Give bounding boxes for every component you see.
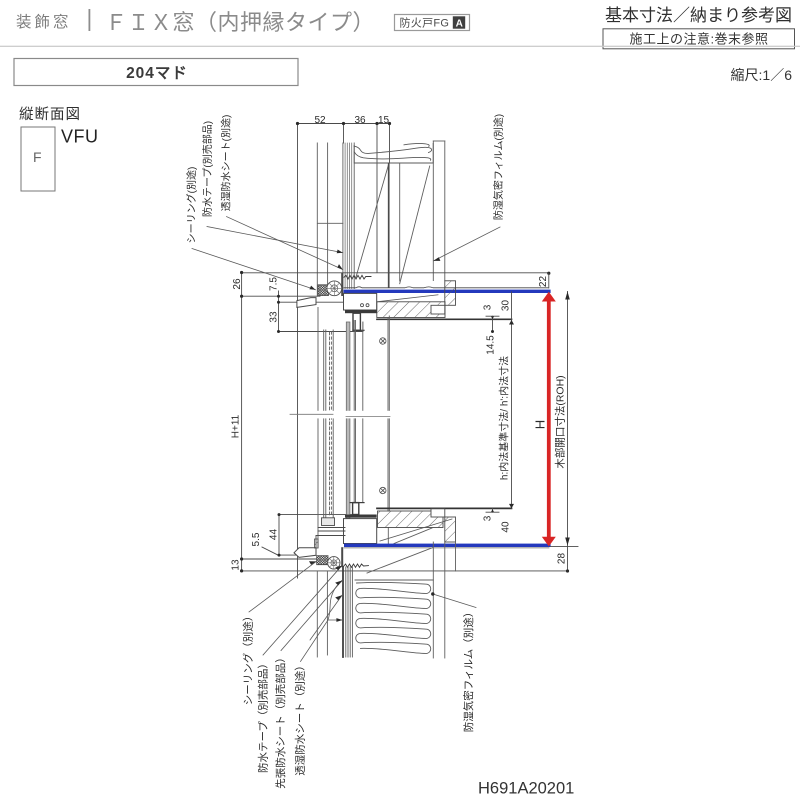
svg-text:40: 40 [501, 521, 512, 533]
svg-text:A: A [456, 18, 463, 29]
svg-text:防湿気密フィルム(別途): 防湿気密フィルム(別途) [492, 114, 505, 220]
svg-text:透湿防水シート（別途）: 透湿防水シート（別途） [293, 660, 306, 776]
svg-text:ＦＩＸ窓（内押縁タイプ）: ＦＩＸ窓（内押縁タイプ） [105, 10, 375, 35]
svg-text:36: 36 [354, 115, 366, 126]
svg-text:H+11: H+11 [231, 414, 242, 438]
svg-text:防火戸FG: 防火戸FG [400, 16, 450, 30]
svg-text:3: 3 [483, 515, 494, 521]
svg-text:52: 52 [314, 115, 326, 126]
svg-text:3: 3 [483, 304, 494, 310]
svg-text:基本寸法／納まり参考図: 基本寸法／納まり参考図 [605, 6, 792, 25]
svg-text:防湿気密フィルム（別途）: 防湿気密フィルム（別途） [462, 607, 475, 733]
svg-text:H691A20201: H691A20201 [478, 780, 574, 798]
svg-text:H: H [532, 420, 547, 429]
svg-text:h:内法基準寸法/ h':内法寸法: h:内法基準寸法/ h':内法寸法 [498, 356, 511, 480]
svg-text:シーリング（別途）: シーリング（別途） [241, 611, 254, 706]
svg-text:木部開口寸法(ROH): 木部開口寸法(ROH) [553, 375, 566, 468]
svg-text:縦断面図: 縦断面図 [19, 106, 81, 123]
svg-text:7.5: 7.5 [269, 277, 280, 291]
svg-text:26: 26 [232, 278, 243, 290]
svg-text:28: 28 [557, 553, 568, 565]
svg-text:44: 44 [269, 529, 280, 541]
svg-text:施工上の注意:巻末参照: 施工上の注意:巻末参照 [629, 32, 768, 47]
svg-text:22: 22 [538, 276, 549, 288]
svg-text:14.5: 14.5 [486, 335, 497, 355]
svg-text:透湿防水シート(別途): 透湿防水シート(別途) [219, 115, 232, 212]
svg-text:縮尺:1／6: 縮尺:1／6 [731, 67, 793, 83]
svg-text:F: F [33, 149, 42, 165]
svg-text:15: 15 [378, 115, 390, 126]
svg-text:5.5: 5.5 [251, 532, 262, 546]
svg-text:VFU: VFU [61, 127, 99, 147]
svg-text:装飾窓: 装飾窓 [16, 13, 72, 31]
svg-text:13: 13 [231, 559, 242, 571]
svg-text:防水テープ（別売部品）: 防水テープ（別売部品） [256, 658, 269, 773]
svg-text:30: 30 [501, 300, 512, 312]
svg-text:204マド: 204マド [126, 65, 188, 82]
svg-text:シーリング(別途): シーリング(別途) [185, 167, 198, 244]
svg-text:33: 33 [269, 311, 280, 323]
svg-text:防水テープ(別売部品): 防水テープ(別売部品) [201, 121, 214, 217]
svg-text:先張防水シート（別売部品）: 先張防水シート（別売部品） [274, 652, 287, 789]
